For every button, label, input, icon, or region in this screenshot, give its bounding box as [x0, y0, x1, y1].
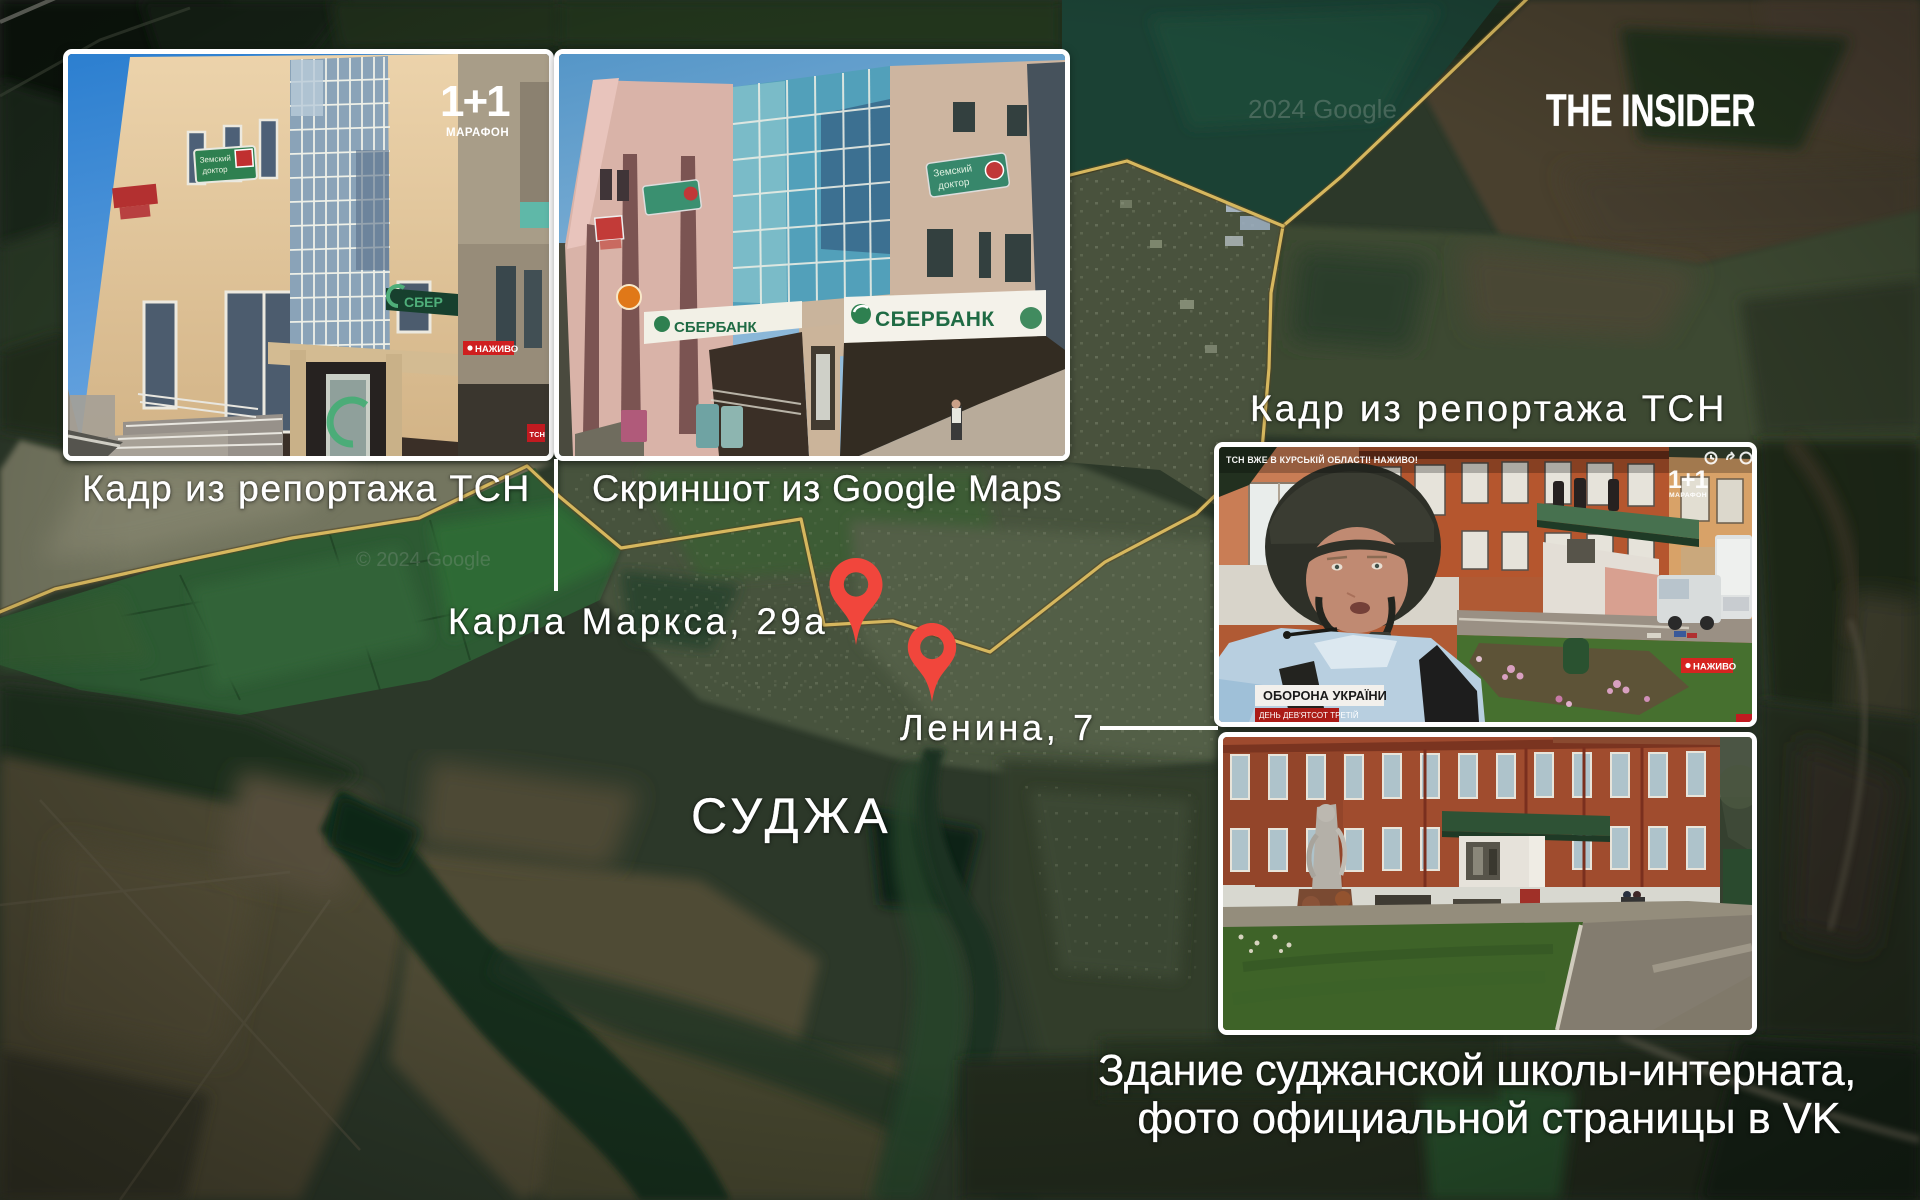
svg-text:НАЖИВО: НАЖИВО	[1693, 662, 1736, 673]
svg-text:ОБОРОНА УКРАЇНИ: ОБОРОНА УКРАЇНИ	[1263, 688, 1387, 703]
svg-text:МАРАФОН: МАРАФОН	[446, 127, 509, 139]
svg-text:ТСН ВЖЕ В КУРСЬКІЙ ОБЛАСТІ! НА: ТСН ВЖЕ В КУРСЬКІЙ ОБЛАСТІ! НАЖИВО!	[1226, 454, 1418, 465]
svg-text:ТСН: ТСН	[530, 430, 545, 439]
svg-text:СБЕРБАНК: СБЕРБАНК	[674, 319, 757, 336]
svg-text:ДЕНЬ ДЕВ'ЯТСОТ ТРЕТІЙ: ДЕНЬ ДЕВ'ЯТСОТ ТРЕТІЙ	[1259, 711, 1359, 720]
svg-text:1+1: 1+1	[1668, 466, 1709, 494]
svg-text:1+1: 1+1	[440, 77, 510, 126]
svg-text:НАЖИВО: НАЖИВО	[475, 344, 518, 355]
svg-text:СБЕРБАНК: СБЕРБАНК	[875, 308, 995, 331]
svg-text:СБЕР: СБЕР	[404, 294, 443, 310]
svg-text:доктор: доктор	[202, 165, 228, 176]
svg-text:МАРАФОН: МАРАФОН	[1669, 492, 1707, 499]
